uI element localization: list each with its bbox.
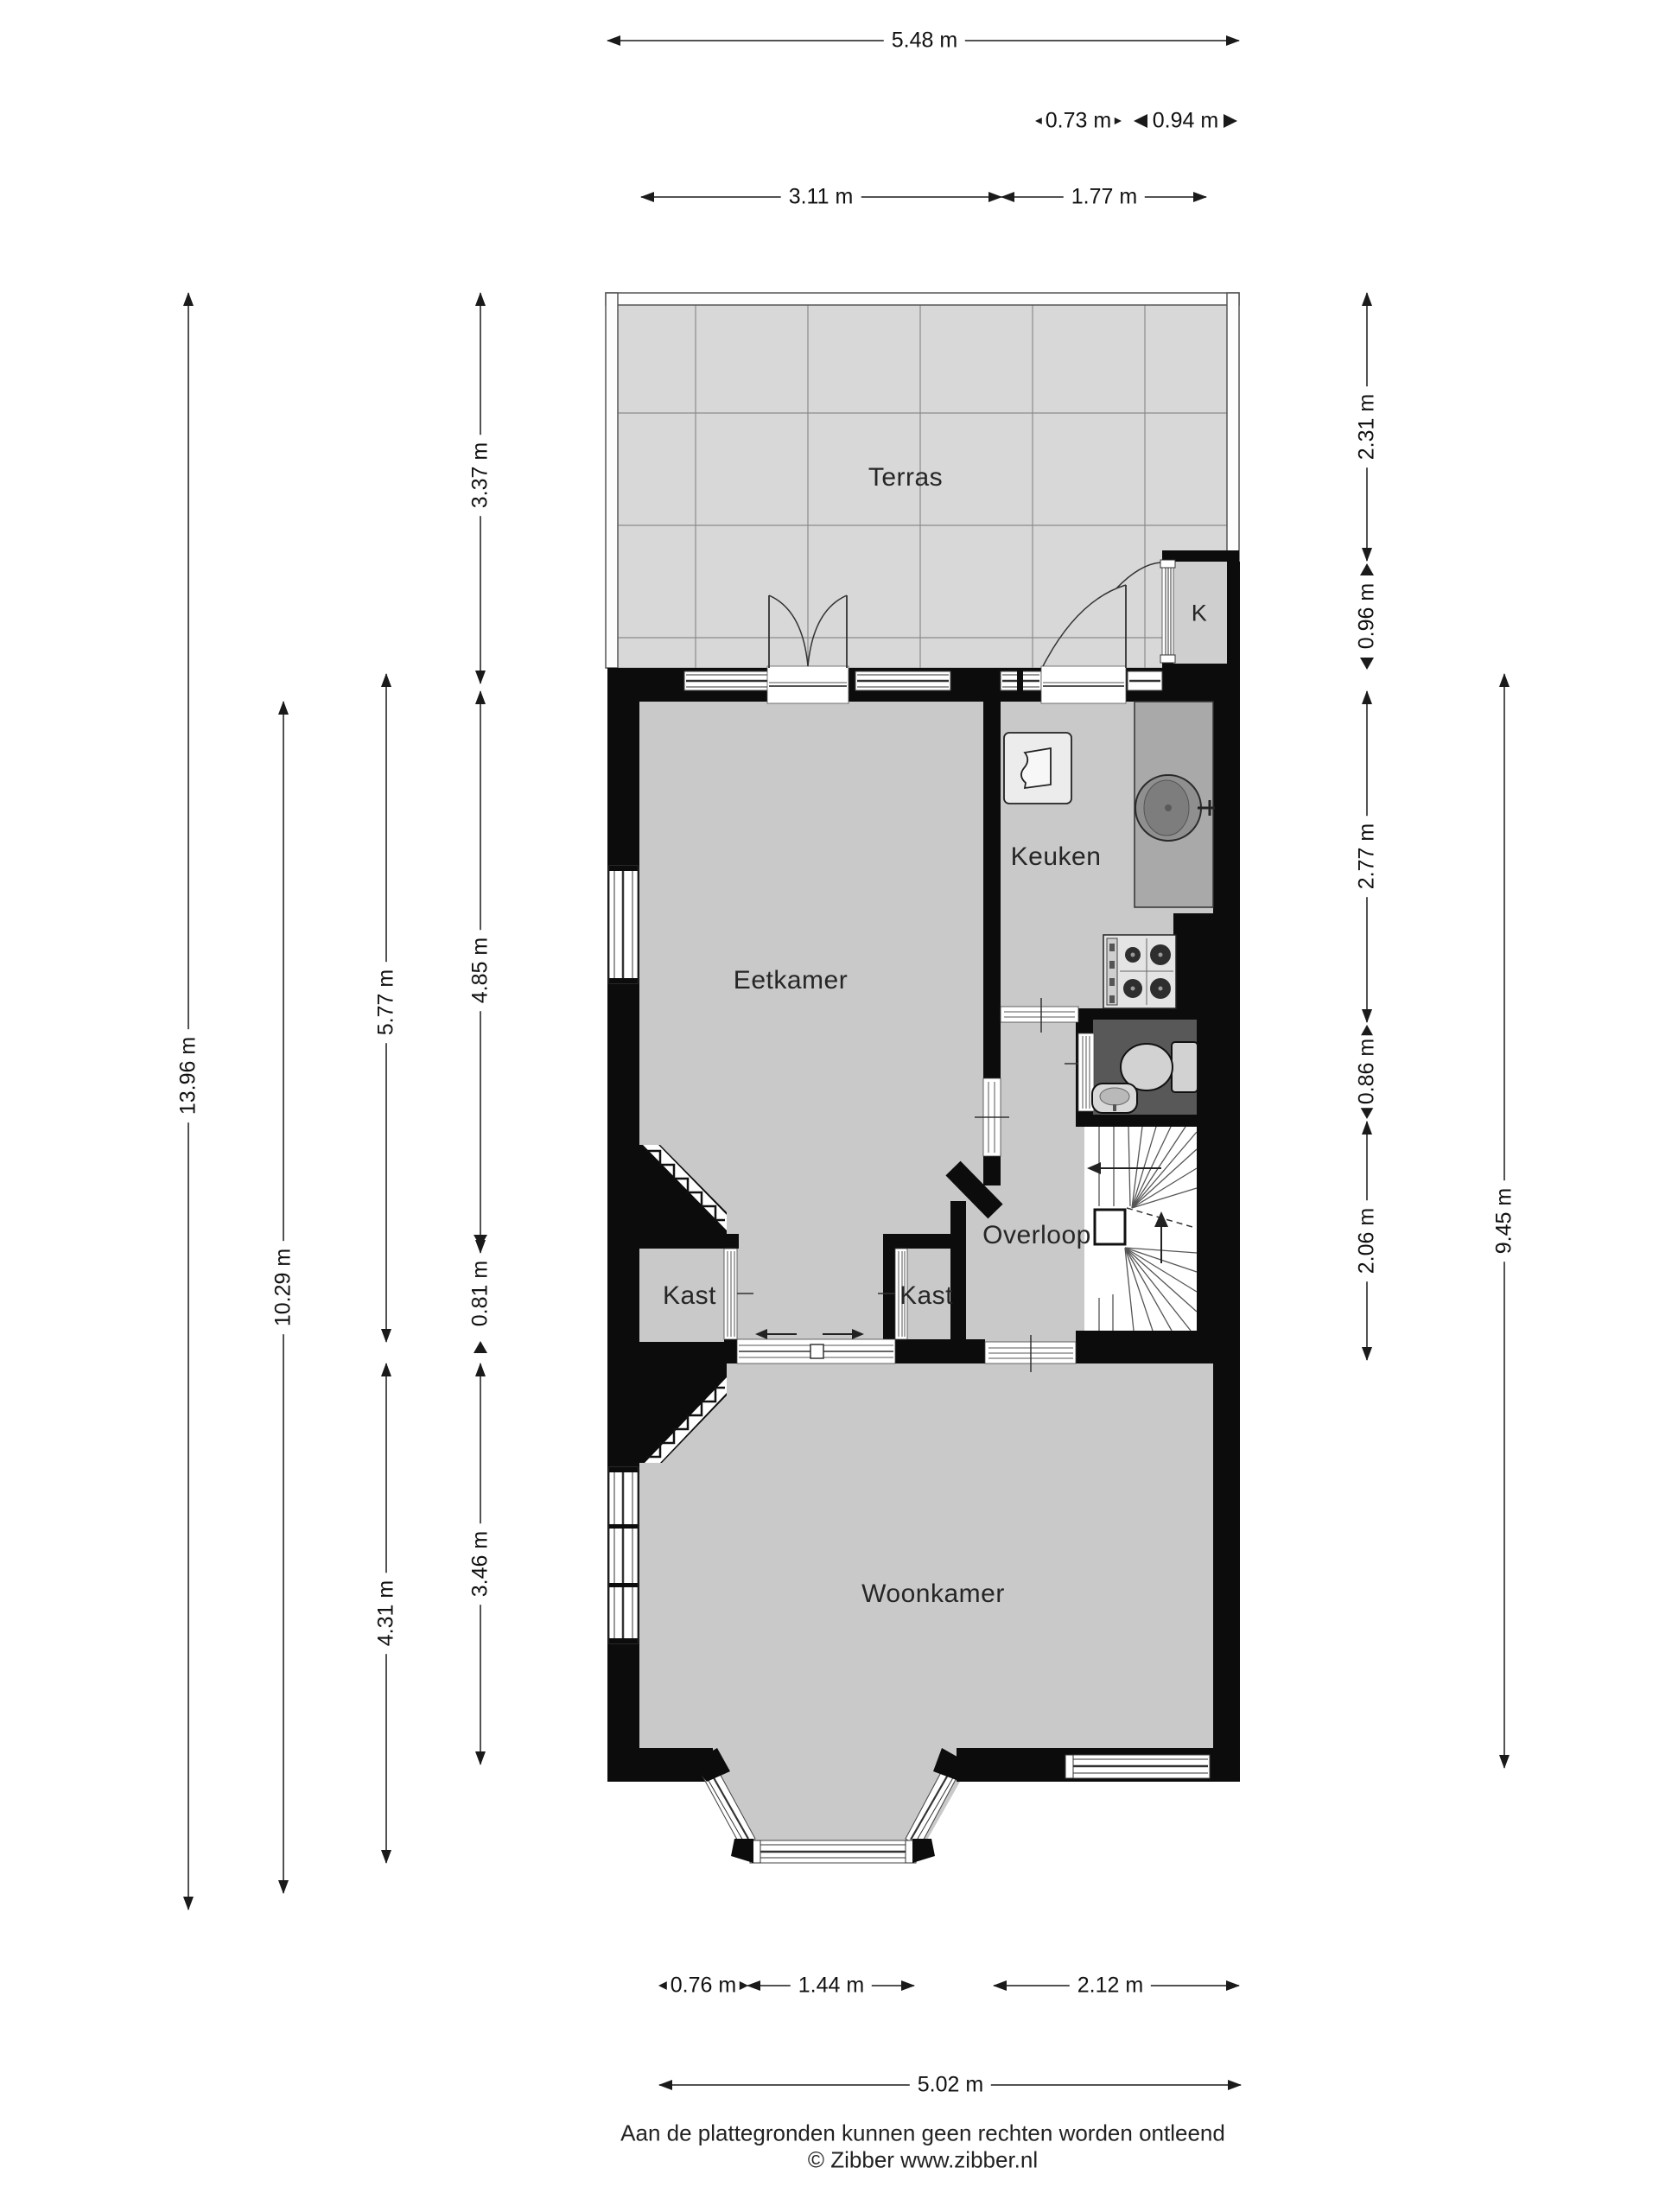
dim-label-086: 0.86 m xyxy=(1354,1035,1381,1108)
window-left-eetkamer xyxy=(609,866,638,983)
window-left-woonkamer xyxy=(609,1467,638,1643)
house-wall-right xyxy=(1213,562,1240,1782)
staircase xyxy=(1084,1127,1197,1331)
wall-bottom-mid xyxy=(957,1748,1065,1782)
room-label-overloop: Overloop xyxy=(982,1221,1091,1250)
window-top-d xyxy=(1128,671,1162,690)
window-top-b xyxy=(855,671,950,690)
wall-wc-bottom xyxy=(1076,1115,1213,1127)
floor-plan-canvas xyxy=(0,0,1659,2212)
footer-disclaimer: Aan de plattegronden kunnen geen rechten… xyxy=(620,2120,1225,2147)
dim-label-945: 9.45 m xyxy=(1491,1180,1518,1262)
dim-label-431: 4.31 m xyxy=(373,1573,400,1654)
terras-wall-top xyxy=(606,293,1239,305)
room-label-terras: Terras xyxy=(868,463,943,493)
room-label-woonkamer: Woonkamer xyxy=(861,1580,1005,1609)
dim-label-overall-width: 5.48 m xyxy=(884,28,965,54)
dim-label-1396: 13.96 m xyxy=(175,1029,202,1122)
dim-label-311: 3.11 m xyxy=(781,184,861,211)
wall-divider-keuken xyxy=(983,676,1001,1078)
toilet-tank-icon xyxy=(1172,1042,1198,1092)
dim-label-094: 0.94 m xyxy=(1149,108,1222,135)
room-label-k: K xyxy=(1192,601,1208,627)
dim-label-177: 1.77 m xyxy=(1064,184,1145,211)
dim-label-144: 1.44 m xyxy=(791,1973,872,1999)
kitchen-unit-icon xyxy=(1004,733,1071,804)
wall-wc-top xyxy=(1080,1008,1213,1020)
wall-stairs-bottom xyxy=(1076,1331,1213,1363)
dim-094-marks xyxy=(1134,114,1147,128)
window-bottom-right xyxy=(1065,1755,1210,1778)
wall-divider-stub xyxy=(983,1156,1001,1185)
dim-081-marks xyxy=(474,1235,487,1247)
stairs-landing xyxy=(1095,1210,1125,1244)
dim-label-337: 3.37 m xyxy=(467,435,494,516)
room-label-keuken: Keuken xyxy=(1011,842,1102,872)
room-label-kast-middle: Kast xyxy=(899,1281,953,1311)
room-label-eetkamer: Eetkamer xyxy=(734,966,848,995)
dim-096-marks xyxy=(1360,563,1374,575)
dim-label-096: 0.96 m xyxy=(1354,580,1381,652)
floorplan-page: Terras Keuken Eetkamer Overloop Kast Kas… xyxy=(0,0,1659,2212)
dim-label-081: 0.81 m xyxy=(467,1257,494,1330)
dim-label-073: 0.73 m xyxy=(1042,108,1115,135)
wall-right-stairs xyxy=(1197,1008,1213,1363)
dim-label-212: 2.12 m xyxy=(1070,1973,1151,1999)
terras-wall-left xyxy=(606,293,618,668)
footer-credit: © Zibber www.zibber.nl xyxy=(808,2147,1038,2174)
eetkamer-floor xyxy=(639,702,983,1348)
dim-label-231: 2.31 m xyxy=(1354,386,1381,467)
wall-kitchen-chunk xyxy=(1173,913,1213,1008)
dim-label-076: 0.76 m xyxy=(667,1973,740,1999)
dim-label-1029: 10.29 m xyxy=(270,1241,297,1334)
dim-label-277: 2.77 m xyxy=(1354,816,1381,897)
wall-channel-right-stub xyxy=(895,1339,985,1363)
dim-label-346: 3.46 m xyxy=(467,1523,494,1605)
window-top-a xyxy=(684,671,769,690)
dim-label-485: 4.85 m xyxy=(467,930,494,1011)
stove-icon xyxy=(1103,935,1176,1008)
dim-label-502: 5.02 m xyxy=(910,2072,991,2099)
dim-label-577: 5.77 m xyxy=(373,962,400,1043)
window-top-c xyxy=(1001,670,1041,692)
dim-label-206: 2.06 m xyxy=(1354,1200,1381,1281)
room-label-kast-left: Kast xyxy=(663,1281,716,1311)
terras-wall-right xyxy=(1227,293,1239,562)
